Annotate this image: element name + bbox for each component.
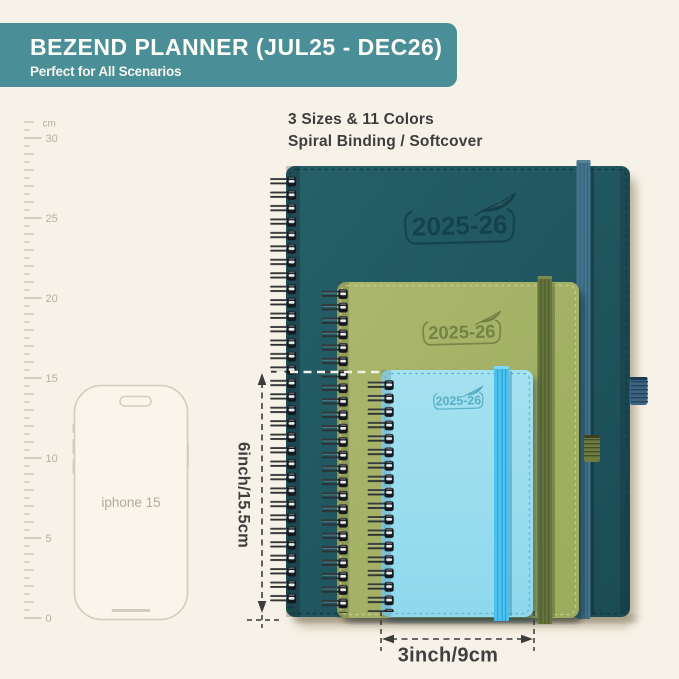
svg-text:2025-26: 2025-26 [435,393,481,408]
svg-text:30: 30 [46,133,58,145]
svg-text:0: 0 [46,613,52,625]
svg-text:iphone 15: iphone 15 [101,495,160,510]
svg-text:cm: cm [43,119,56,130]
svg-text:15: 15 [46,373,58,385]
svg-text:25: 25 [46,213,58,225]
svg-text:5: 5 [46,533,52,545]
svg-text:10: 10 [46,453,58,465]
svg-text:2025-26: 2025-26 [428,320,496,343]
svg-text:3inch/9cm: 3inch/9cm [398,645,499,667]
svg-text:2025-26: 2025-26 [412,209,508,241]
svg-text:20: 20 [46,293,58,305]
svg-text:6inch/15.5cm: 6inch/15.5cm [235,442,253,548]
